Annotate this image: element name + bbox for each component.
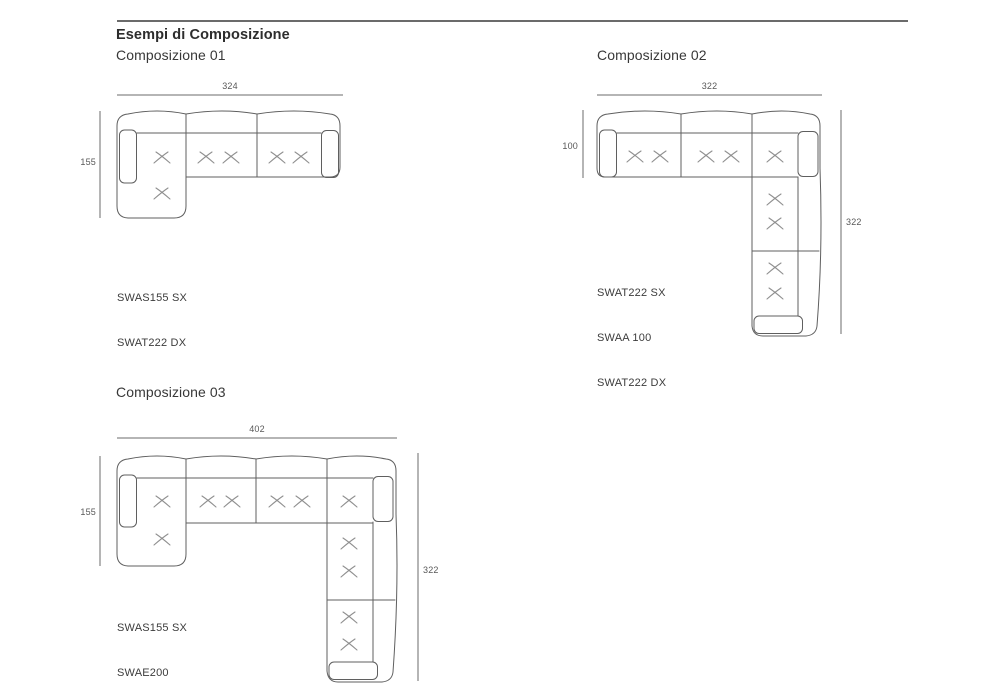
stitch-x-mark bbox=[294, 496, 310, 507]
stitch-x-mark bbox=[767, 218, 783, 229]
stitch-x-mark bbox=[341, 496, 357, 507]
composition-01-title: Composizione 01 bbox=[116, 47, 226, 63]
bottom-armrest bbox=[754, 316, 803, 334]
part-code: SWAS155 SX bbox=[117, 621, 187, 636]
stitch-x-mark bbox=[293, 152, 309, 163]
dim-right-02: 322 bbox=[846, 217, 862, 227]
stitch-x-mark bbox=[341, 538, 357, 549]
stitch-x-mark bbox=[341, 612, 357, 623]
composition-03-title: Composizione 03 bbox=[116, 384, 226, 400]
stitch-x-mark bbox=[269, 152, 285, 163]
page-title: Esempi di Composizione bbox=[116, 27, 290, 43]
stitch-x-mark bbox=[154, 496, 170, 507]
right-armrest bbox=[322, 131, 339, 178]
composition-01-drawing bbox=[117, 111, 340, 218]
part-code: SWAS155 SX bbox=[117, 291, 187, 306]
left-armrest bbox=[120, 130, 137, 183]
stitch-x-mark bbox=[269, 496, 285, 507]
dim-width-02: 322 bbox=[597, 81, 822, 91]
composition-03-parts: SWAS155 SX SWAE200 SWAA 100 SWAT222 DX bbox=[117, 591, 187, 700]
part-code: SWAE200 bbox=[117, 666, 187, 681]
corner-back-cushion bbox=[373, 477, 393, 522]
composition-02-title: Composizione 02 bbox=[597, 47, 707, 63]
stitch-x-mark bbox=[223, 152, 239, 163]
dim-left-03: 155 bbox=[70, 507, 96, 517]
stitch-x-mark bbox=[698, 151, 714, 162]
stitch-x-mark bbox=[198, 152, 214, 163]
part-code: SWAT222 DX bbox=[597, 376, 666, 391]
stitch-x-mark bbox=[224, 496, 240, 507]
stitch-x-mark bbox=[767, 263, 783, 274]
left-armrest bbox=[600, 130, 617, 177]
catalog-page: Esempi di Composizione Composizione 01 C… bbox=[0, 0, 1000, 700]
stitch-x-mark bbox=[767, 151, 783, 162]
dim-right-03: 322 bbox=[423, 565, 439, 575]
stitch-x-mark bbox=[723, 151, 739, 162]
stitch-marks bbox=[154, 152, 309, 199]
stitch-x-mark bbox=[767, 194, 783, 205]
dim-width-03: 402 bbox=[117, 424, 397, 434]
bottom-armrest bbox=[329, 662, 378, 680]
left-armrest bbox=[120, 475, 137, 527]
sofa-outline bbox=[117, 111, 340, 218]
dim-left-01: 155 bbox=[70, 157, 96, 167]
stitch-x-mark bbox=[767, 288, 783, 299]
stitch-x-mark bbox=[341, 639, 357, 650]
part-code: SWAT222 SX bbox=[597, 286, 666, 301]
stitch-x-mark bbox=[154, 188, 170, 199]
stitch-x-mark bbox=[341, 566, 357, 577]
stitch-x-mark bbox=[154, 534, 170, 545]
composition-02-parts: SWAT222 SX SWAA 100 SWAT222 DX bbox=[597, 256, 666, 421]
part-code: SWAT222 DX bbox=[117, 336, 187, 351]
corner-back-cushion bbox=[798, 132, 818, 177]
part-code: SWAA 100 bbox=[597, 331, 666, 346]
dim-left-02: 100 bbox=[552, 141, 578, 151]
dim-width-01: 324 bbox=[117, 81, 343, 91]
composition-01-parts: SWAS155 SX SWAT222 DX bbox=[117, 261, 187, 381]
stitch-x-mark bbox=[154, 152, 170, 163]
stitch-x-mark bbox=[627, 151, 643, 162]
stitch-x-mark bbox=[200, 496, 216, 507]
stitch-x-mark bbox=[652, 151, 668, 162]
